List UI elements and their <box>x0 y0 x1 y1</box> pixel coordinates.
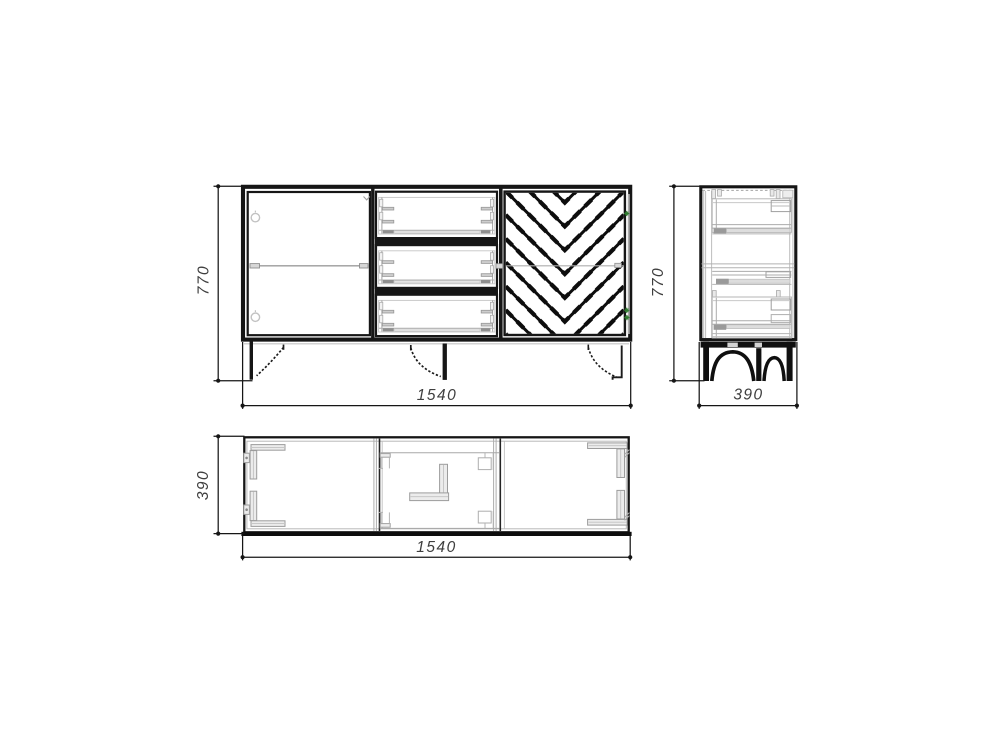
svg-text:1540: 1540 <box>417 387 457 404</box>
svg-text:770: 770 <box>196 265 213 295</box>
svg-text:770: 770 <box>650 267 667 297</box>
svg-text:1540: 1540 <box>416 539 456 556</box>
svg-text:390: 390 <box>195 470 212 500</box>
svg-text:390: 390 <box>733 387 763 404</box>
